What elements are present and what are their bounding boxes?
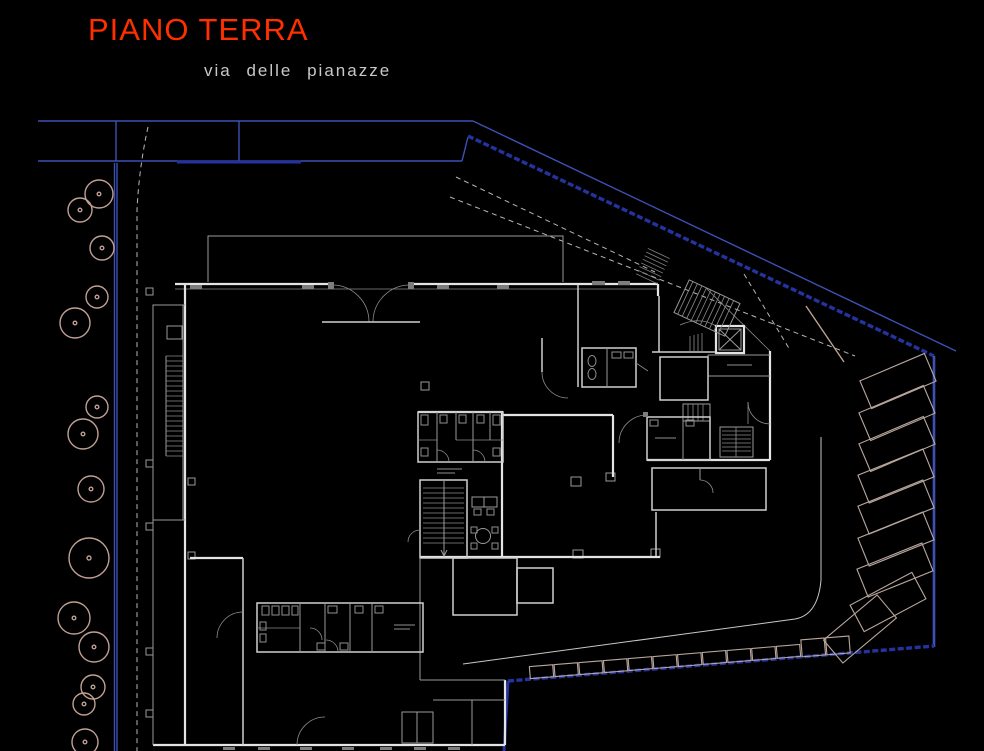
angled-parking-group — [824, 354, 937, 663]
tree — [79, 632, 109, 662]
left-external-stair — [153, 305, 185, 520]
tree — [90, 236, 114, 260]
bathroom-row-south — [257, 603, 423, 652]
interior-walls — [190, 338, 648, 745]
tree — [85, 180, 113, 208]
pilasters — [146, 281, 660, 750]
street-parking-group — [529, 636, 850, 679]
entry-steps — [636, 248, 670, 284]
entrance-doors — [322, 282, 420, 322]
central-staircase — [408, 480, 467, 558]
cad-drawing-canvas: PIANO TERRA via delle pianazze — [0, 0, 984, 751]
south-rooms — [297, 712, 433, 745]
tree — [73, 693, 95, 715]
central-bathroom-block — [418, 412, 503, 473]
tree — [86, 286, 108, 308]
road-via-delle-pianazze — [38, 121, 956, 356]
tree — [68, 198, 92, 222]
tree — [69, 538, 109, 578]
tree — [86, 396, 108, 418]
site-boundary-lines — [115, 163, 935, 751]
wc-rooms-east — [578, 285, 648, 387]
canopy-outline — [208, 236, 563, 282]
tree — [78, 476, 104, 502]
tree — [81, 675, 105, 699]
external-stair-ne — [674, 280, 740, 336]
office-room — [471, 497, 498, 549]
building-floor-plan — [146, 236, 770, 750]
trees-group — [58, 180, 114, 751]
tree — [60, 308, 90, 338]
lower-center-rooms — [420, 558, 553, 680]
tree — [58, 602, 90, 634]
floor-plan-drawing — [0, 0, 984, 751]
tree — [72, 729, 98, 751]
tree — [68, 419, 98, 449]
